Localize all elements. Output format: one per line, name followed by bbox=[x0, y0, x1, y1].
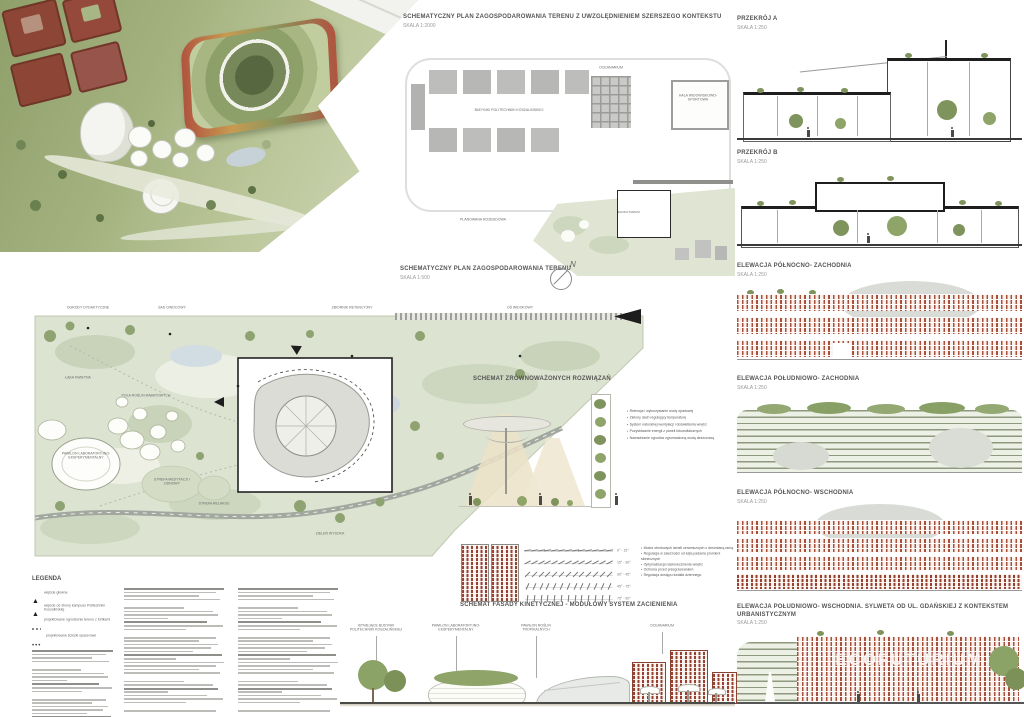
city-block bbox=[715, 246, 727, 260]
tree bbox=[96, 214, 104, 222]
elev-sw-ground bbox=[737, 472, 1022, 473]
glass-blob bbox=[773, 442, 829, 470]
legend-text: wejście główne bbox=[44, 591, 68, 595]
roof-green bbox=[975, 404, 1009, 414]
plant bbox=[551, 498, 559, 506]
city-block bbox=[429, 70, 457, 94]
elev-sw-title: ELEWACJA POŁUDNIOWO- ZACHODNIA bbox=[737, 376, 1024, 384]
interior-tree bbox=[789, 114, 803, 128]
city-block bbox=[695, 240, 711, 258]
umbrella bbox=[708, 688, 726, 695]
roof-green bbox=[919, 402, 965, 414]
city-block bbox=[463, 70, 491, 94]
person bbox=[539, 496, 542, 505]
site-label: PAWILON LABORATORYJNO- EKSPERYMENTALNY bbox=[59, 452, 114, 460]
elev-se-panel: ELEWACJA POŁUDNIOWO- WSCHODNIA. SYLWETA … bbox=[737, 604, 1024, 716]
person bbox=[857, 694, 860, 702]
kinetic-panel: SCHEMAT FASADY KINETYCZNEJ - MODUŁOWY SY… bbox=[455, 518, 735, 618]
section-b-panel: PRZEKRÓJ B SKALA 1:250 bbox=[737, 150, 1024, 252]
oceanarium-label: OCEANARIUM bbox=[597, 66, 625, 70]
section-a-ground bbox=[737, 138, 1022, 140]
tree bbox=[58, 170, 67, 179]
section-b-drawing bbox=[737, 172, 1022, 250]
mullion bbox=[777, 210, 778, 243]
leader-line bbox=[536, 636, 537, 678]
tree bbox=[206, 200, 216, 210]
canopy-rib bbox=[485, 426, 529, 443]
roof-plant bbox=[817, 631, 824, 636]
mullion bbox=[817, 96, 818, 136]
umbrella bbox=[678, 684, 700, 692]
person bbox=[469, 496, 472, 505]
bullet: Pozyskiwanie energii z paneli fotowoltai… bbox=[627, 428, 735, 435]
section-a-drawing bbox=[737, 40, 1022, 142]
bottom-label: ISTNIEJĄCE BUDYNKI POLITECHNIKI KOSZALIŃ… bbox=[349, 624, 404, 632]
campus-block bbox=[70, 41, 129, 94]
entrance-gap bbox=[833, 343, 851, 357]
tank bbox=[128, 126, 152, 148]
mullion bbox=[937, 210, 938, 243]
clerestory bbox=[815, 182, 945, 212]
legend-text: projektowane ogrodzenie terenu z furtkam… bbox=[44, 618, 119, 622]
city-block bbox=[429, 128, 457, 152]
section-b-scale: SKALA 1:250 bbox=[737, 159, 1024, 165]
roof-green bbox=[867, 404, 905, 414]
roof-plant bbox=[905, 53, 912, 58]
louver-mark bbox=[540, 595, 542, 602]
elev-ne-drawing bbox=[737, 516, 1022, 596]
angle-label: 45° - 75° bbox=[617, 585, 631, 589]
campus-block bbox=[9, 52, 72, 108]
facade-sample bbox=[491, 544, 519, 602]
elev-se-drawing: ECOFUTURIUM bbox=[737, 628, 1024, 708]
main-body bbox=[741, 206, 1019, 248]
interior-tree bbox=[937, 100, 957, 120]
plant bbox=[567, 500, 573, 506]
facade-band bbox=[737, 340, 1022, 357]
person bbox=[867, 236, 870, 243]
facade-band bbox=[737, 556, 1022, 570]
louver-mark bbox=[601, 595, 603, 602]
site-label: ŁĄKA KWIETNA bbox=[65, 376, 91, 380]
sustainable-panel: SCHEMAT ZRÓWNOWAŻONYCH ROZWIĄZAŃ bbox=[455, 376, 735, 518]
city-block bbox=[497, 70, 525, 94]
elev-sw-panel: ELEWACJA POŁUDNIOWO- ZACHODNIA SKALA 1:2… bbox=[737, 376, 1024, 484]
roof-plant bbox=[837, 177, 844, 182]
elev-se-scale: SKALA 1:250 bbox=[737, 620, 1024, 626]
interior-tree bbox=[983, 112, 996, 125]
elev-ne-title: ELEWACJA PÓŁNOCNO- WSCHODNIA bbox=[737, 490, 1024, 498]
city-block bbox=[531, 128, 559, 152]
soil-shadow bbox=[340, 704, 735, 707]
diagram-ground bbox=[459, 506, 591, 507]
bottom-elevation: ISTNIEJĄCE BUDYNKI POLITECHNIKI KOSZALIŃ… bbox=[340, 620, 735, 712]
mullion bbox=[969, 62, 970, 136]
louver-mark bbox=[567, 595, 569, 602]
legend-microtext bbox=[32, 650, 116, 717]
facade-band bbox=[737, 520, 1022, 534]
road bbox=[633, 180, 733, 184]
legend-panel: LEGENDA ▲ wejście główne ▲ wejście od st… bbox=[32, 576, 124, 716]
louver-mark bbox=[574, 595, 576, 602]
bullet: Zielony dach regulujący temperaturę bbox=[627, 415, 735, 422]
tree bbox=[16, 140, 26, 150]
interior-tree bbox=[835, 118, 846, 129]
elev-ne-panel: ELEWACJA PÓŁNOCNO- WSCHODNIA SKALA 1:250 bbox=[737, 490, 1024, 602]
roof-green bbox=[757, 404, 791, 414]
legend-title: LEGENDA bbox=[32, 576, 124, 582]
angle-label: 15° - 30° bbox=[617, 561, 631, 565]
mullion bbox=[927, 62, 928, 136]
roof-plant bbox=[757, 201, 764, 206]
angle-label: 0° - 15° bbox=[617, 549, 629, 553]
mullion bbox=[777, 96, 778, 136]
elev-nw-drawing bbox=[737, 291, 1022, 367]
ecofuturium-label: ECOFUTURIUM bbox=[618, 211, 640, 214]
tree bbox=[148, 120, 155, 127]
louver-mark bbox=[533, 595, 535, 602]
tank bbox=[196, 144, 215, 162]
site-label: OGRODY DYDAKTYCZNE bbox=[67, 306, 110, 310]
green-wall bbox=[591, 394, 611, 508]
bullet: Nawadnianie ogrodów zgromadzoną wodą des… bbox=[627, 435, 735, 442]
mullion bbox=[857, 96, 858, 136]
bottom-label: PAWILON ROŚLIN TROPIKALNYCH bbox=[511, 624, 561, 632]
glass-blob bbox=[929, 428, 993, 468]
oceanarium-block bbox=[591, 76, 631, 128]
context-plan-scale: SKALA 1:2000 bbox=[403, 23, 735, 29]
roof-plant bbox=[797, 87, 804, 92]
white-blob bbox=[561, 230, 575, 242]
bullet: Regulacja dostępu światła dziennego bbox=[641, 573, 735, 578]
elev-nw-ground bbox=[737, 359, 1022, 360]
louver-mark bbox=[531, 549, 538, 551]
louver-mark bbox=[565, 549, 572, 551]
kinetic-bullets: Moduł obrotowych lameli ceramicznych z d… bbox=[641, 546, 735, 606]
facade-band bbox=[737, 294, 1022, 311]
hala-block bbox=[671, 80, 729, 130]
aerial-render bbox=[0, 0, 418, 252]
facade-sample bbox=[461, 544, 489, 602]
city-block bbox=[531, 70, 559, 94]
louver-mark bbox=[608, 595, 610, 602]
bullet: System naturalnej wentylacji i doświetle… bbox=[627, 421, 735, 428]
pond bbox=[225, 144, 268, 170]
triangle-icon: ▲ bbox=[32, 611, 39, 618]
facade-band bbox=[737, 317, 1022, 334]
bottom-label: OCEANARIUM bbox=[650, 624, 674, 628]
context-plan-panel: SCHEMATYCZNY PLAN ZAGOSPODAROWANIA TEREN… bbox=[403, 14, 735, 252]
section-a-title: PRZEKRÓJ A bbox=[737, 16, 1024, 24]
sustainable-diagram: Retencja i wykorzystanie wody opadowej Z… bbox=[455, 390, 735, 516]
roof-plant bbox=[981, 53, 988, 58]
elev-sw-drawing bbox=[737, 402, 1022, 480]
mullion bbox=[981, 210, 982, 243]
round-pavilion-roof bbox=[434, 670, 518, 686]
tank bbox=[172, 152, 189, 168]
umbrella bbox=[640, 686, 660, 694]
water-tower bbox=[80, 102, 134, 162]
roof-plant bbox=[841, 88, 848, 93]
louver-row bbox=[525, 558, 613, 567]
white-blob bbox=[579, 220, 589, 229]
description-column bbox=[124, 588, 228, 714]
tree bbox=[30, 200, 41, 211]
oceanarium-block bbox=[670, 650, 708, 704]
louver-rows: 0° - 15° 15° - 30° 30° - 45° 45° - 75° 7… bbox=[525, 544, 645, 604]
plant bbox=[517, 496, 527, 506]
roof-plant bbox=[887, 176, 894, 181]
city-block bbox=[497, 128, 525, 152]
roof-plant bbox=[877, 630, 884, 635]
louver-row bbox=[525, 570, 613, 579]
louver-row bbox=[525, 582, 613, 591]
angle-label: 75° - 90° bbox=[617, 597, 631, 601]
plant bbox=[473, 498, 481, 506]
context-plan-drawing: BUDYNKI POLITECHNIKI KOSZALIŃSKIEJ OCEAN… bbox=[403, 40, 735, 250]
tree bbox=[384, 670, 406, 692]
tank bbox=[174, 128, 196, 148]
site-label: POLA ROŚLIN RABATOWYCH bbox=[122, 394, 171, 398]
angle-label: 30° - 45° bbox=[617, 573, 631, 577]
site-label: ZIELEŃ WYSOKA bbox=[316, 532, 345, 536]
city-block bbox=[411, 84, 425, 130]
green-blob bbox=[589, 236, 629, 254]
bottom-label: PAWILON LABORATORYJNO- EKSPERYMENTALNY bbox=[429, 624, 484, 632]
tree bbox=[248, 186, 256, 194]
umbrella-pole bbox=[687, 690, 689, 702]
roof-plant bbox=[757, 88, 764, 93]
tree bbox=[1005, 668, 1024, 690]
roof-plant bbox=[789, 200, 796, 205]
facade-band bbox=[737, 538, 1022, 552]
leader-line bbox=[662, 632, 663, 654]
site-label: OŚ WIDOKOWY bbox=[507, 306, 533, 310]
legend-text: projektowane ścieżki spacerowe bbox=[46, 634, 96, 638]
city-block bbox=[463, 128, 491, 152]
bullet: Retencja i wykorzystanie wody opadowej bbox=[627, 408, 735, 415]
interior-tree bbox=[833, 220, 849, 236]
person bbox=[917, 694, 920, 702]
elev-nw-title: ELEWACJA PÓŁNOCNO- ZACHODNIA bbox=[737, 263, 1024, 271]
presentation-board: SCHEMATYCZNY PLAN ZAGOSPODAROWANIA TEREN… bbox=[0, 0, 1024, 717]
elev-se-title: ELEWACJA POŁUDNIOWO- WSCHODNIA. SYLWETA … bbox=[737, 604, 1022, 619]
tree bbox=[262, 140, 271, 149]
sustainable-bullets: Retencja i wykorzystanie wody opadowej Z… bbox=[627, 408, 735, 518]
section-b-title: PRZEKRÓJ B bbox=[737, 150, 1024, 158]
site-label: SAD OWOCOWY bbox=[158, 306, 186, 310]
fence-line-icon bbox=[32, 628, 41, 630]
elev-ne-ground bbox=[737, 590, 1022, 591]
roof-plant bbox=[995, 201, 1002, 206]
louver-mark bbox=[599, 549, 606, 551]
tree bbox=[358, 660, 388, 690]
facade-lettering: ECOFUTURIUM bbox=[803, 650, 1015, 670]
interior-tree bbox=[887, 216, 907, 236]
facade-band bbox=[737, 574, 1022, 589]
section-b-ground bbox=[737, 244, 1022, 246]
elev-se-ground bbox=[737, 702, 1024, 704]
rozbudowa-label: PLANOWANA ROZBUDOWA bbox=[460, 218, 506, 222]
site-label: ZBIORNIK RETENCYJNY bbox=[332, 306, 373, 310]
tank bbox=[152, 140, 172, 159]
section-a-scale: SKALA 1:250 bbox=[737, 25, 1024, 31]
campus-label: BUDYNKI POLITECHNIKI KOSZALIŃSKIEJ bbox=[472, 108, 547, 113]
dots-icon: ••• bbox=[32, 643, 41, 649]
context-plan-title: SCHEMATYCZNY PLAN ZAGOSPODAROWANIA TEREN… bbox=[403, 14, 723, 22]
umbrella-pole bbox=[648, 692, 650, 702]
sustainable-title: SCHEMAT ZRÓWNOWAŻONYCH ROZWIĄZAŃ bbox=[473, 376, 735, 384]
roof-plant bbox=[959, 200, 966, 205]
mullion bbox=[857, 210, 858, 243]
person bbox=[807, 130, 810, 137]
tree-trunk bbox=[372, 688, 374, 702]
louver-row bbox=[525, 594, 613, 603]
site-label: STREFA RELAKSU bbox=[199, 502, 230, 506]
person bbox=[615, 496, 618, 505]
interior-tree bbox=[953, 224, 965, 236]
umbrella-pole bbox=[715, 693, 717, 702]
roof-green bbox=[807, 402, 851, 414]
louver-row bbox=[525, 546, 613, 555]
section-a-panel: PRZEKRÓJ A SKALA 1:250 bbox=[737, 16, 1024, 144]
site-label: STREFA MEDYTACJI I ODNOWY bbox=[150, 478, 195, 486]
bullet: Regulacja w zależności od kąta padania p… bbox=[641, 551, 735, 562]
louver-mark bbox=[606, 549, 613, 551]
hala-label: HALA WIDOWISKOWO- SPORTOWA bbox=[671, 94, 726, 102]
person bbox=[951, 130, 954, 137]
city-block bbox=[565, 70, 589, 94]
elev-sw-scale: SKALA 1:250 bbox=[737, 385, 1024, 391]
tank bbox=[130, 150, 148, 167]
description-column bbox=[238, 588, 342, 714]
legend-text: wejście od strony kampusu Politechniki K… bbox=[44, 604, 119, 612]
legend-entry: ▲ wejście od strony kampusu Politechniki… bbox=[32, 603, 39, 621]
elev-nw-panel: ELEWACJA PÓŁNOCNO- ZACHODNIA SKALA 1:250 bbox=[737, 263, 1024, 373]
ecofuturium-box: ECOFUTURIUM bbox=[617, 190, 671, 238]
roof-plant bbox=[947, 631, 954, 636]
elev-nw-scale: SKALA 1:250 bbox=[737, 272, 1024, 278]
